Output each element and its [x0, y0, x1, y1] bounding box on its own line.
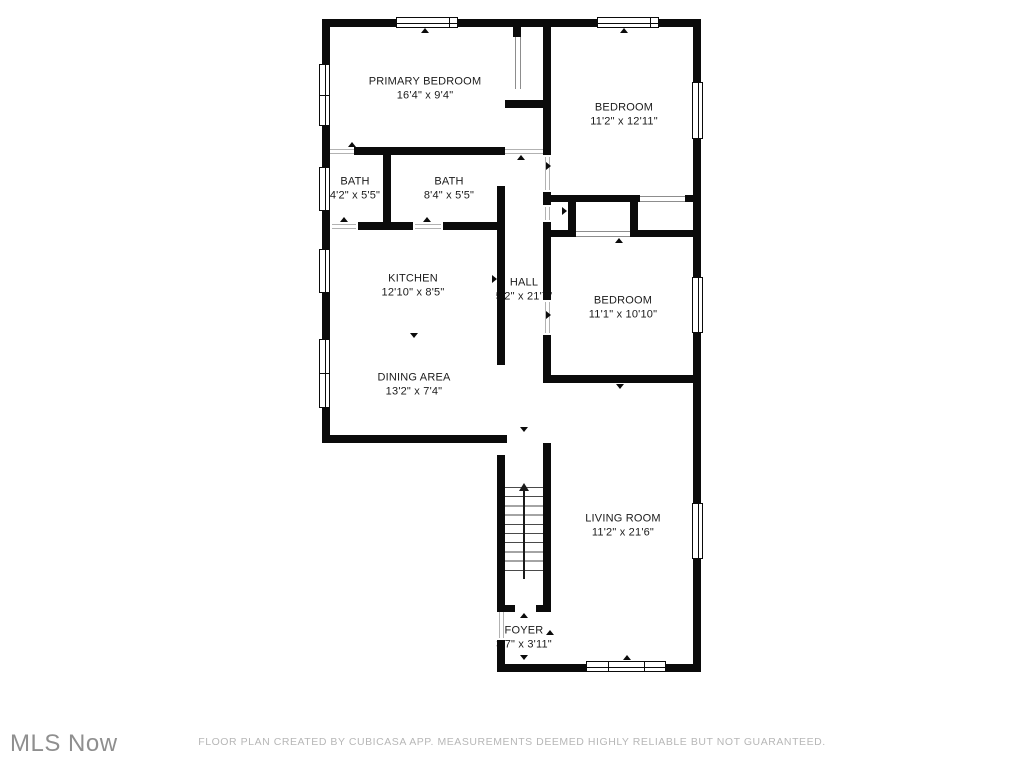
wall-segment [543, 27, 551, 155]
room-label-bath-1: BATH 4'2" x 5'5" [330, 176, 380, 203]
window-glazing-line [598, 23, 658, 24]
wall-segment [543, 192, 551, 205]
door-opening [505, 149, 543, 154]
door-marker [520, 655, 528, 660]
wall-segment [543, 237, 551, 300]
wall-segment [497, 605, 515, 612]
window-glazing-line [325, 168, 326, 210]
window-symbol [319, 249, 330, 293]
room-name: KITCHEN [382, 273, 445, 287]
staircase [505, 443, 543, 605]
wall-segment [497, 455, 505, 608]
wall-segment [543, 443, 551, 612]
window-symbol [597, 17, 659, 28]
room-dimensions: 11'2" x 12'11" [590, 115, 658, 129]
door-marker [492, 275, 497, 283]
room-label-dining-area: DINING AREA 13'2" x 7'4" [377, 372, 450, 399]
room-name: BATH [424, 176, 474, 190]
window-glazing-line [587, 667, 665, 668]
room-name: BATH [330, 176, 380, 190]
door-marker [615, 197, 623, 202]
floor-plan: PRIMARY BEDROOM 16'4" x 9'4" BEDROOM 11'… [0, 0, 1024, 768]
room-name: FOYER [496, 625, 552, 639]
wall-segment [322, 435, 507, 443]
window-symbol [586, 661, 666, 672]
wall-segment [497, 186, 505, 365]
window-divider [320, 373, 329, 374]
window-symbol [319, 167, 330, 211]
door-marker [546, 630, 554, 635]
window-marker [620, 28, 628, 33]
wall-segment [568, 202, 576, 230]
window-divider [320, 95, 329, 96]
door-marker [348, 142, 356, 147]
window-glazing-line [397, 23, 457, 24]
window-symbol [396, 17, 458, 28]
door-marker [562, 207, 567, 215]
door-opening [330, 149, 354, 154]
closet-front [576, 231, 630, 237]
wall-segment [505, 100, 543, 108]
door-opening [332, 224, 356, 229]
closet-front [515, 37, 521, 89]
door-marker [546, 162, 551, 170]
window-divider [644, 662, 645, 671]
door-marker [546, 311, 551, 319]
door-marker [410, 333, 418, 338]
window-symbol [692, 277, 703, 333]
door-marker [615, 238, 623, 243]
room-name: PRIMARY BEDROOM [369, 76, 482, 90]
closet-front [640, 196, 685, 202]
wall-segment [630, 202, 638, 230]
door-marker [520, 613, 528, 618]
room-name: BEDROOM [590, 102, 658, 116]
room-dimensions: 16'4" x 9'4" [369, 89, 482, 103]
room-label-living-room: LIVING ROOM 11'2" x 21'6" [585, 513, 661, 540]
window-symbol [319, 64, 330, 126]
wall-segment [513, 27, 521, 37]
disclaimer-text: FLOOR PLAN CREATED BY CUBICASA APP. MEAS… [0, 736, 1024, 748]
window-divider [608, 662, 609, 671]
room-name: BEDROOM [589, 295, 657, 309]
window-glazing-line [698, 83, 699, 138]
window-marker [421, 28, 429, 33]
window-divider [650, 18, 651, 27]
room-label-primary-bedroom: PRIMARY BEDROOM 16'4" x 9'4" [369, 76, 482, 103]
room-dimensions: 11'1" x 10'10" [589, 308, 657, 322]
wall-segment [358, 222, 413, 230]
wall-segment [630, 230, 693, 237]
door-marker [616, 384, 624, 389]
window-glazing-line [698, 504, 699, 558]
wall-segment [543, 222, 551, 237]
room-dimensions: 13'2" x 7'4" [377, 385, 450, 399]
door-marker [517, 155, 525, 160]
wall-segment [685, 195, 693, 202]
room-name: LIVING ROOM [585, 513, 661, 527]
door-marker [340, 217, 348, 222]
room-label-bedroom-2: BEDROOM 11'1" x 10'10" [589, 295, 657, 322]
room-dimensions: 12'10" x 8'5" [382, 286, 445, 300]
door-opening [545, 207, 550, 220]
wall-segment [536, 605, 551, 612]
door-marker [520, 427, 528, 432]
window-symbol [692, 82, 703, 139]
door-opening [499, 610, 504, 638]
wall-segment [383, 155, 391, 222]
room-label-kitchen: KITCHEN 12'10" x 8'5" [382, 273, 445, 300]
stair-direction-line [523, 491, 525, 579]
room-dimensions: 8'4" x 5'5" [424, 189, 474, 203]
wall-segment [354, 147, 505, 155]
stair-up-arrow-icon [519, 483, 529, 491]
door-marker [423, 217, 431, 222]
room-dimensions: 4'2" x 5'5" [330, 189, 380, 203]
room-label-bedroom-1: BEDROOM 11'2" x 12'11" [590, 102, 658, 129]
room-label-bath-2: BATH 8'4" x 5'5" [424, 176, 474, 203]
window-glazing-line [698, 278, 699, 332]
room-dimensions: 11'2" x 21'6" [585, 526, 661, 540]
door-marker [623, 655, 631, 660]
window-symbol [692, 503, 703, 559]
wall-segment [551, 195, 640, 202]
wall-segment [443, 222, 505, 230]
wall-segment [497, 640, 505, 672]
window-symbol [319, 339, 330, 408]
wall-segment [551, 230, 576, 237]
door-opening [415, 224, 441, 229]
window-divider [449, 18, 450, 27]
room-name: DINING AREA [377, 372, 450, 386]
window-glazing-line [325, 250, 326, 292]
wall-segment [543, 375, 693, 383]
